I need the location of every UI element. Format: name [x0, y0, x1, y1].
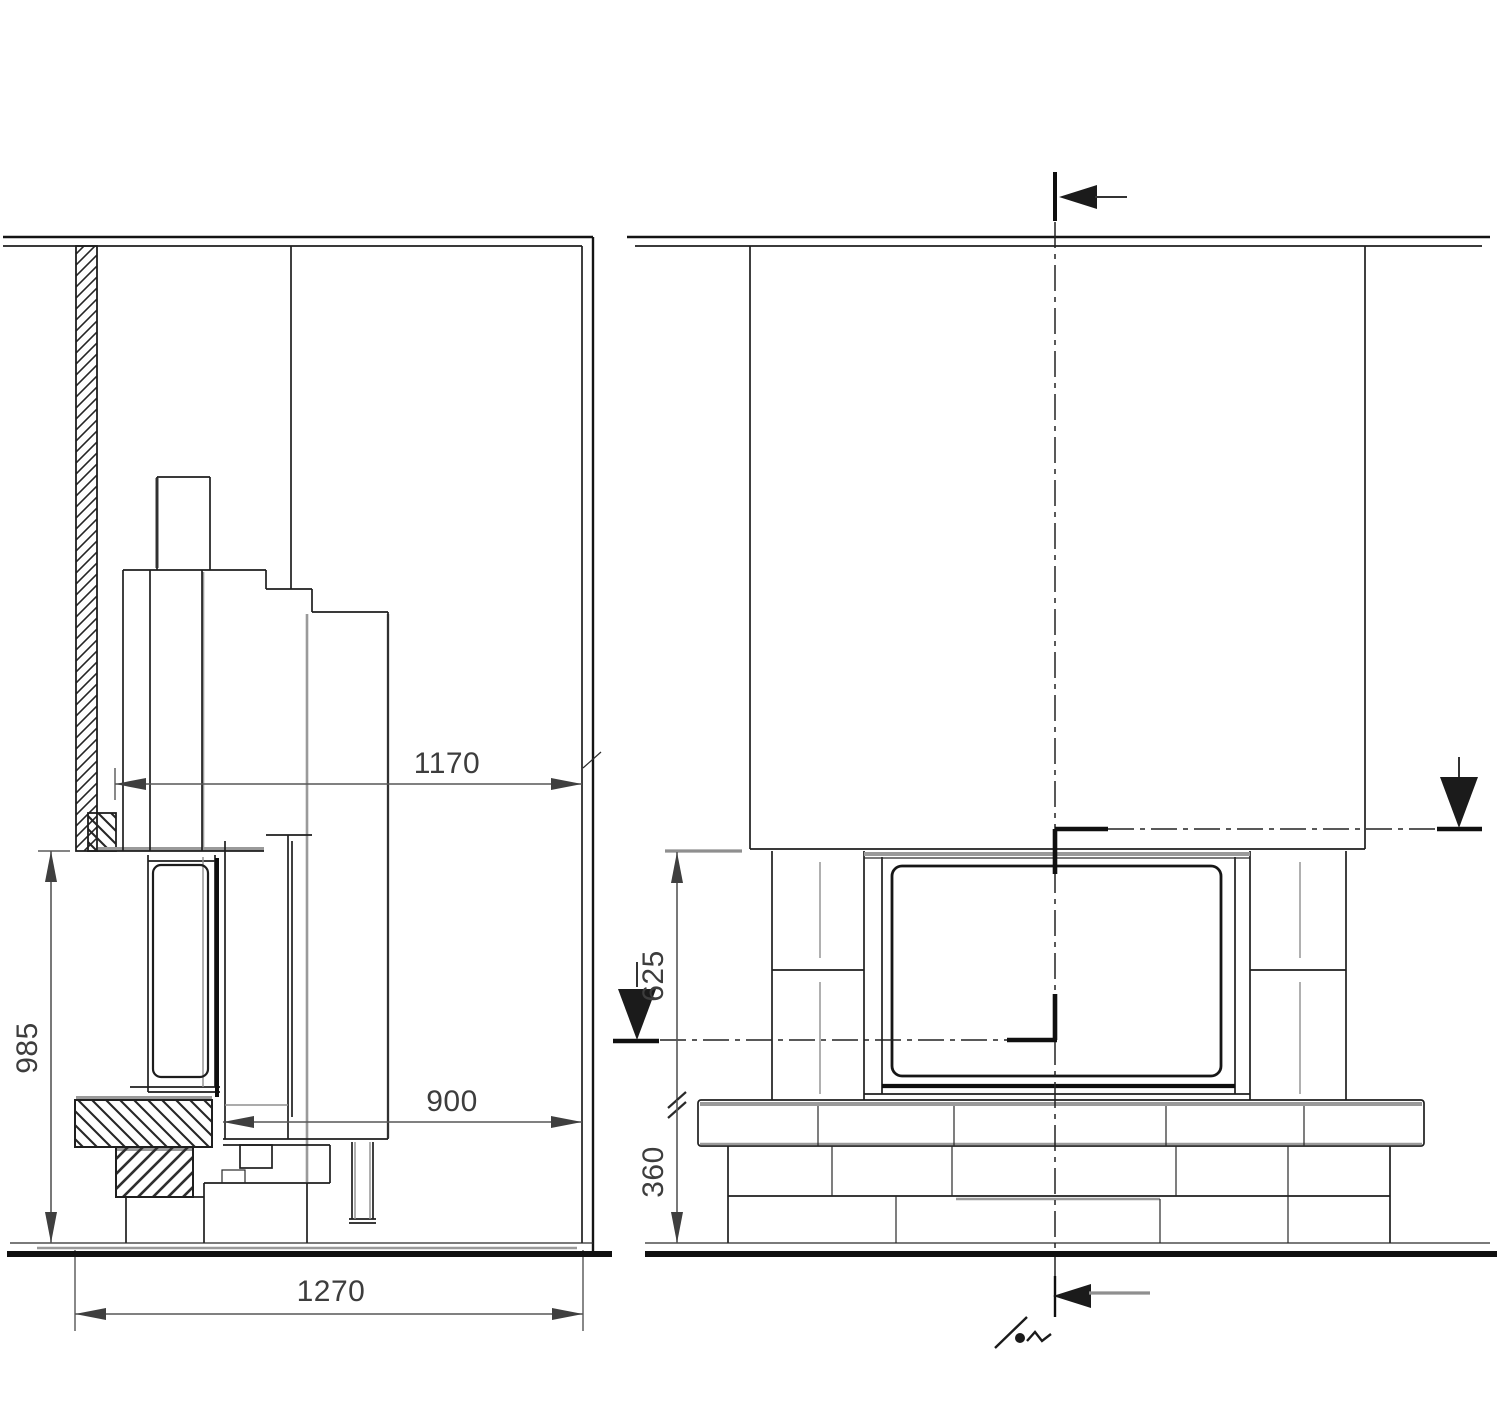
stove-structure	[97, 246, 388, 1223]
section-marker-top	[1055, 172, 1127, 221]
dimension-360-label: 360	[637, 1146, 670, 1198]
technical-drawing: 1170 900 985 1270	[0, 0, 1500, 1427]
door-glass-front	[892, 866, 1221, 1076]
bench-slab-hatch	[75, 1100, 212, 1147]
reference-dot	[1015, 1333, 1025, 1343]
firebox-frame	[864, 851, 1250, 1100]
section-arrow-left-bottom	[1053, 1284, 1091, 1308]
side-section-view: 1170 900 985 1270	[3, 237, 601, 1331]
lintel-hatch	[88, 813, 116, 851]
dimension-360: 360	[637, 1100, 683, 1243]
dimension-1270: 1270	[75, 1250, 583, 1331]
front-section-view: 625 360	[613, 172, 1490, 1348]
dimension-625-label: 625	[637, 950, 670, 1002]
dimension-900: 900	[223, 1085, 582, 1128]
front-cladding-hatch	[76, 246, 97, 851]
section-marker-bottom	[995, 1276, 1150, 1348]
stove-structure-light	[203, 857, 370, 1219]
dimension-985-label: 985	[11, 1022, 44, 1074]
door-glass-pane-side	[153, 865, 208, 1077]
bench-slab	[698, 1100, 1424, 1146]
dimension-1170: 1170	[115, 747, 582, 800]
foot-spacer	[222, 1170, 245, 1183]
plinth-course-upper	[728, 1146, 1390, 1196]
dimension-1270-label: 1270	[297, 1275, 366, 1308]
front-foot	[240, 1145, 272, 1168]
reference-squiggle-mark	[995, 1317, 1051, 1348]
drawing-sheet: 1170 900 985 1270	[0, 0, 1500, 1427]
section-arrow-left-top	[1059, 185, 1097, 209]
section-arrow-down-right	[1440, 777, 1478, 828]
bench-plinth-hatch	[116, 1147, 193, 1197]
dimension-1170-label: 1170	[414, 747, 481, 780]
stepped-cut-line	[613, 757, 1482, 1041]
plinth-course-lower	[728, 1196, 1390, 1243]
dimension-625: 625	[637, 851, 742, 1118]
surround-columns	[772, 851, 1346, 1100]
dimension-900-label: 900	[426, 1085, 478, 1118]
dimension-985: 985	[11, 851, 70, 1243]
chimney-breast-panel	[750, 246, 1365, 849]
